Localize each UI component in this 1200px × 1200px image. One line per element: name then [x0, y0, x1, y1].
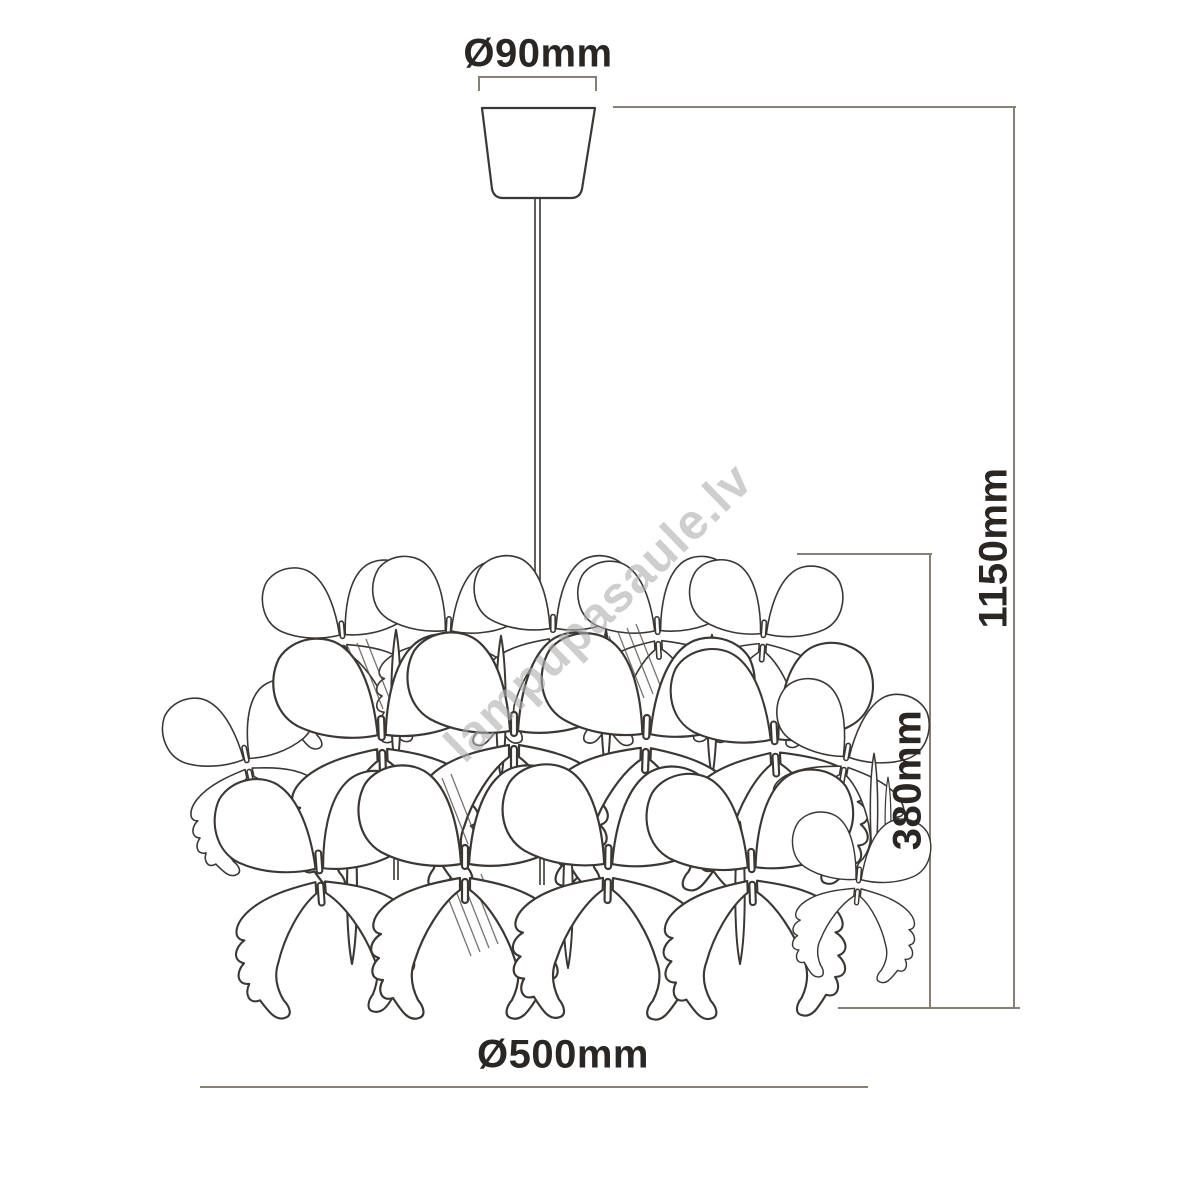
dimension-drawing-canvas: Ø90mm 1150mm 380mm Ø500mm lampupasaule.l… [0, 0, 1200, 1200]
ceiling-canopy [482, 108, 595, 198]
dim-label-overall-height: 1150mm [972, 468, 1017, 629]
suspension-cord [535, 198, 540, 586]
canopy-diameter-bracket [479, 77, 596, 91]
lamp-line-drawing [0, 0, 1200, 1200]
dim-label-shade-diameter: Ø500mm [477, 1033, 649, 1078]
dim-label-canopy-diameter: Ø90mm [463, 32, 612, 77]
butterfly-shade [157, 555, 934, 1023]
dim-label-shade-height: 380mm [886, 710, 931, 850]
